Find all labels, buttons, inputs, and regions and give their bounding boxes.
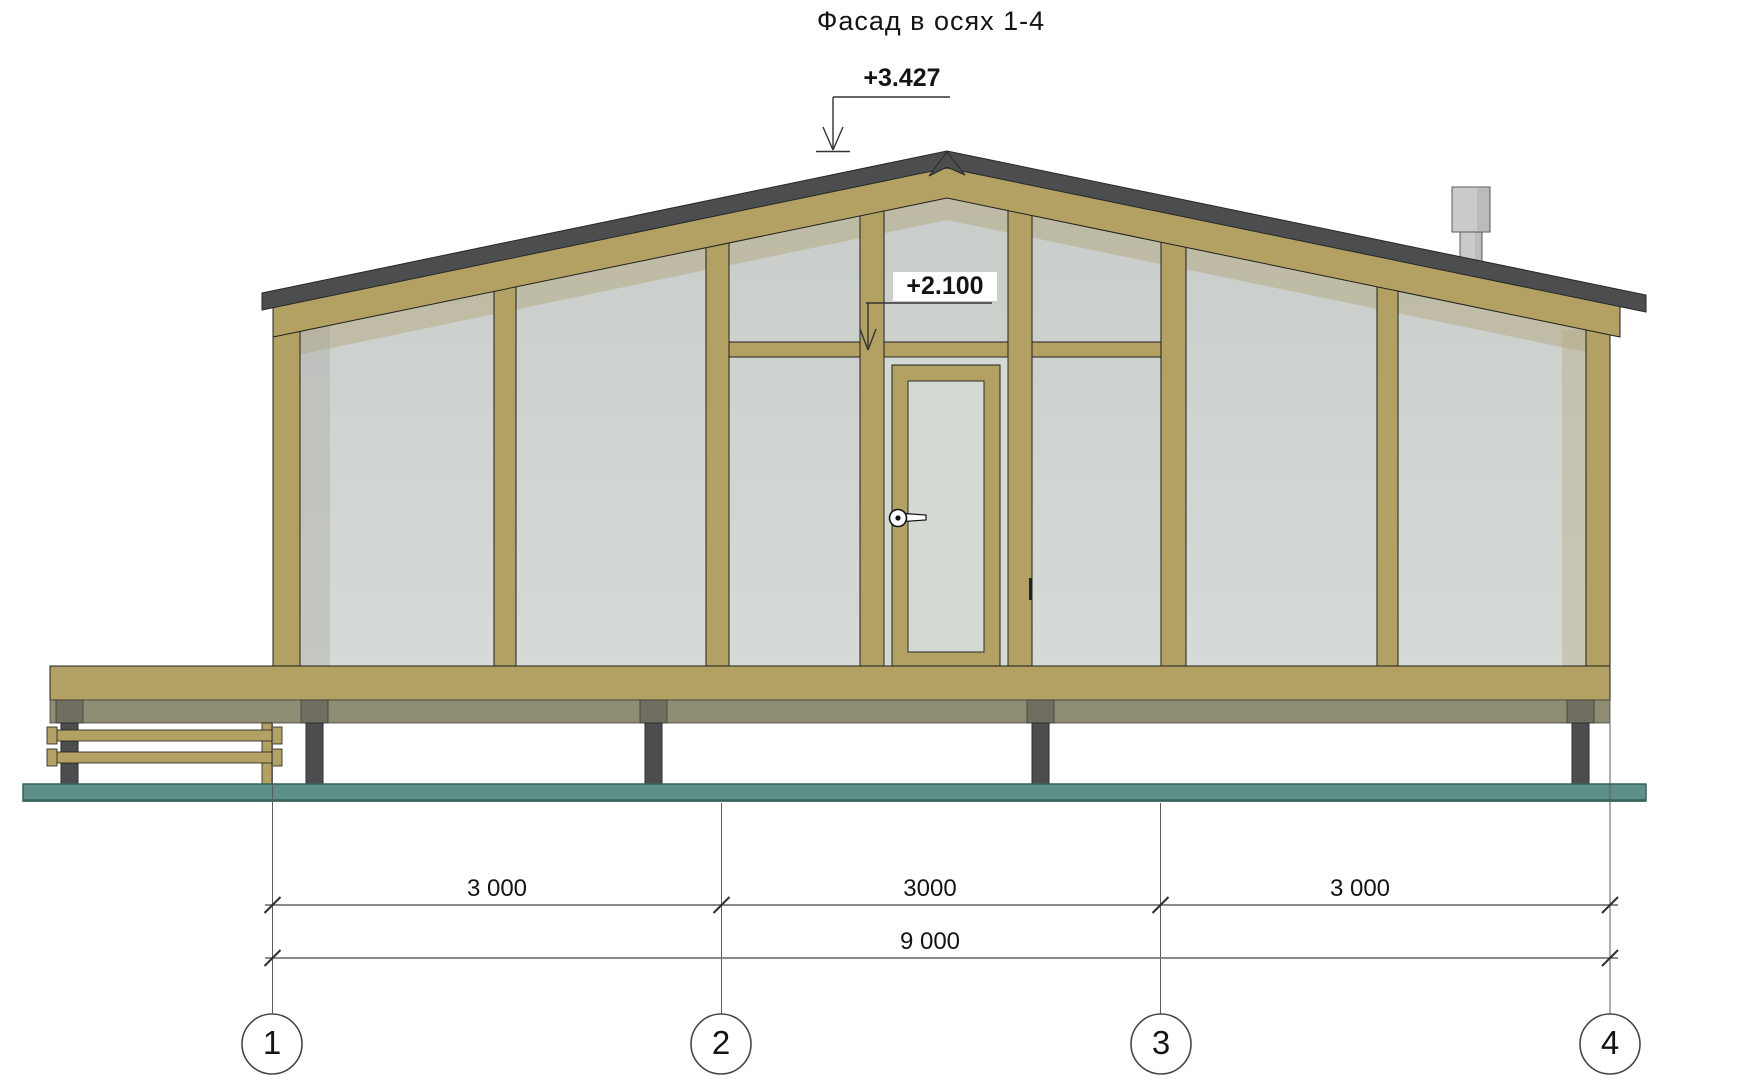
door-handle-axle <box>895 515 900 520</box>
door-elevation-label: +2.100 <box>893 272 997 301</box>
axis-number-1: 1 <box>245 1024 299 1062</box>
wall-post-door-right <box>1008 210 1032 668</box>
axis-bubbles <box>242 1014 1640 1074</box>
chimney-cap-shade <box>1477 188 1490 231</box>
wall-post-door-left <box>860 210 884 668</box>
pile-cap <box>1567 700 1594 723</box>
elevation-graphic <box>0 0 1745 1080</box>
wall-post <box>494 285 516 668</box>
wall-post <box>1377 285 1398 668</box>
pile <box>306 723 323 784</box>
axis-lines <box>273 723 1611 1014</box>
dim-label-total: 9 000 <box>868 928 992 956</box>
rim-beam <box>50 700 1610 723</box>
leader-arrow <box>833 127 843 150</box>
rail-end-plate <box>272 749 282 766</box>
rail-end-plate <box>47 727 57 744</box>
pile-cap <box>56 700 83 723</box>
axis-number-3: 3 <box>1134 1024 1188 1062</box>
foundation-rim <box>50 700 1610 723</box>
rail-end-plate <box>47 749 57 766</box>
pile-cap <box>301 700 328 723</box>
wall-post-axis2 <box>706 242 729 668</box>
deck-rail-upper <box>52 730 281 741</box>
deck-substructure <box>47 723 282 784</box>
facade-drawing: Фасад в осях 1-4 +3.427 +2.100 3 000 300… <box>0 0 1745 1080</box>
pile-cap <box>640 700 667 723</box>
ground-strip <box>23 784 1646 801</box>
pile <box>1572 723 1589 784</box>
ridge-elevation-label: +3.427 <box>840 64 964 93</box>
drawing-title: Фасад в осях 1-4 <box>701 6 1161 37</box>
deck-rail-lower <box>52 752 281 763</box>
ridge-elevation-leader <box>816 97 950 152</box>
wall-post-right-corner <box>1586 329 1610 668</box>
right-post-shadow <box>1562 330 1586 668</box>
axis-number-2: 2 <box>694 1024 748 1062</box>
dim-label-segment-3: 3 000 <box>1300 875 1420 903</box>
pile <box>645 723 662 784</box>
floor-deck-band <box>50 666 1610 700</box>
rail-end-plate <box>272 727 282 744</box>
axis-number-4: 4 <box>1583 1024 1637 1062</box>
wall-post-left-corner <box>273 328 300 668</box>
left-post-shadow <box>300 325 330 668</box>
pile <box>1032 723 1049 784</box>
chimney <box>1452 187 1490 267</box>
wall-post-axis3 <box>1161 241 1186 668</box>
door-strike-plate <box>1029 578 1033 600</box>
leader-arrow <box>823 127 833 150</box>
foundation-piles <box>61 723 1589 784</box>
dim-label-segment-1: 3 000 <box>437 875 557 903</box>
transom-beam <box>729 342 1161 357</box>
dim-label-segment-2: 3000 <box>870 875 990 903</box>
pile-cap <box>1027 700 1054 723</box>
